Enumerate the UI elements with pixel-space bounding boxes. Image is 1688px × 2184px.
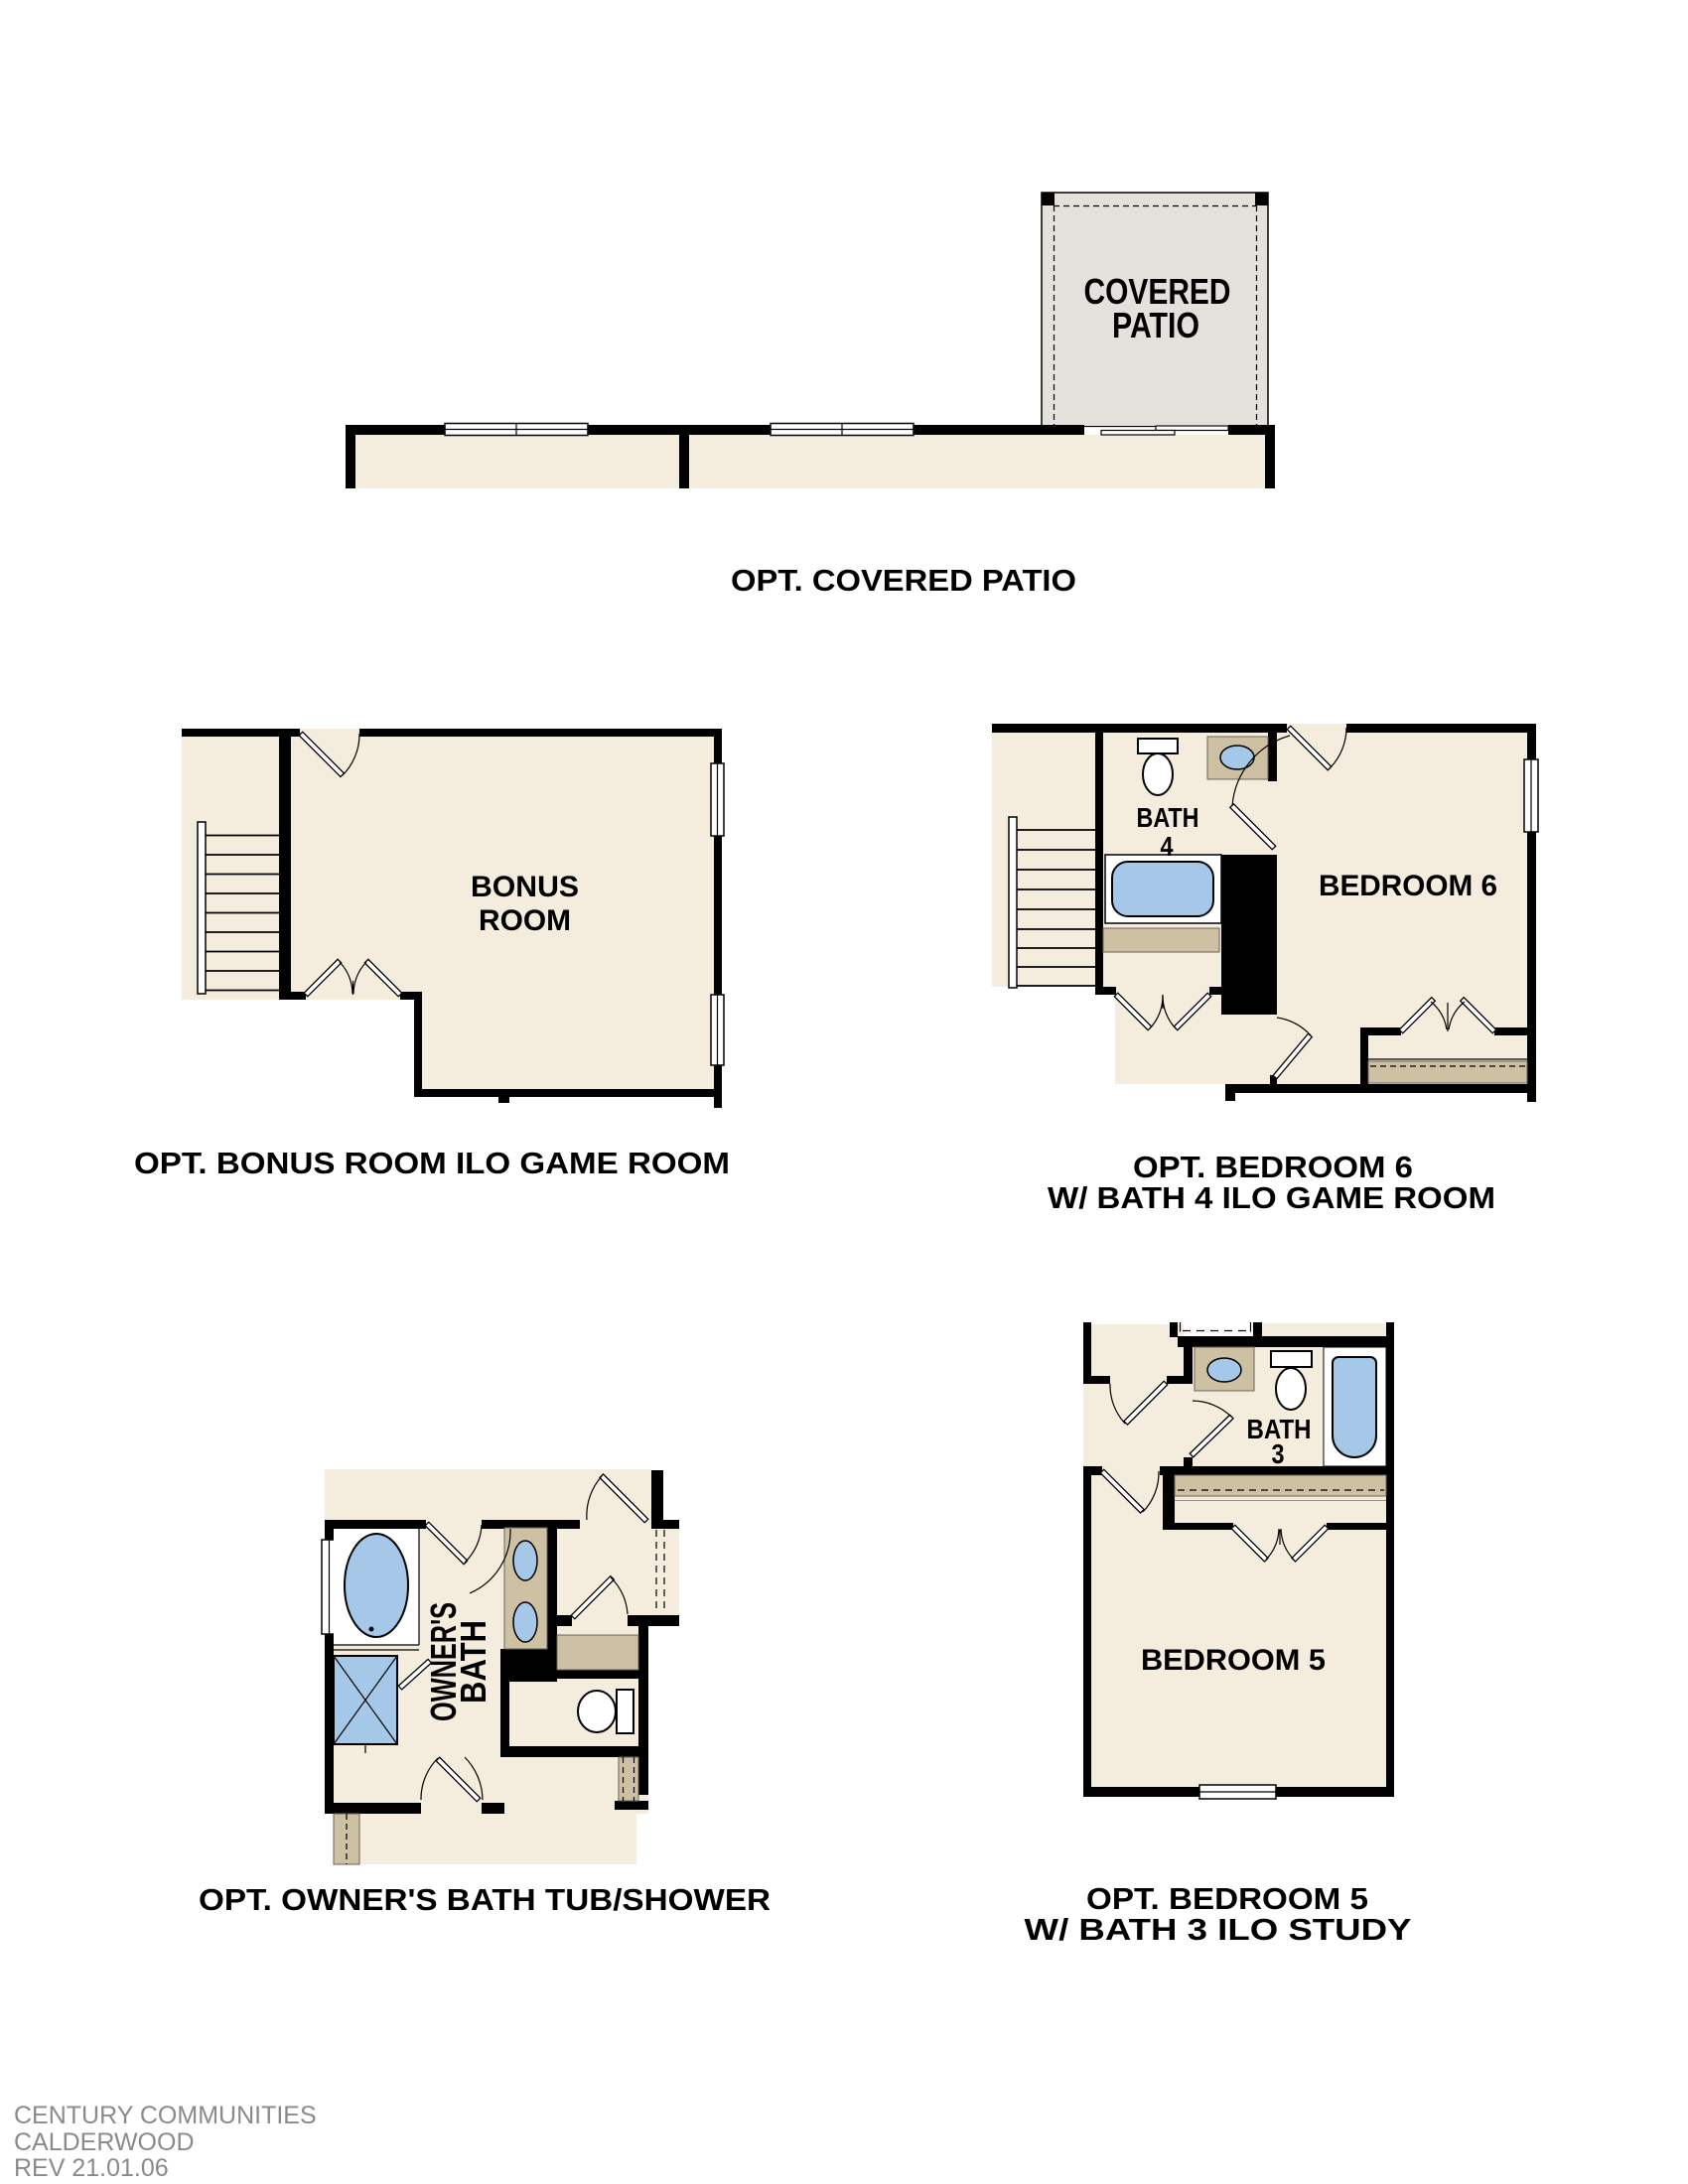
svg-text:CENTURY COMMUNITIES: CENTURY COMMUNITIES <box>14 2102 317 2129</box>
svg-text:BEDROOM 6: BEDROOM 6 <box>1319 870 1497 902</box>
svg-text:OPT. BEDROOM 6: OPT. BEDROOM 6 <box>1133 1150 1413 1184</box>
svg-text:W/ BATH 3 ILO STUDY: W/ BATH 3 ILO STUDY <box>1025 1912 1412 1947</box>
svg-text:BEDROOM 5: BEDROOM 5 <box>1141 1644 1326 1677</box>
svg-text:BATH: BATH <box>453 1620 493 1704</box>
svg-text:CALDERWOOD: CALDERWOOD <box>14 2128 195 2156</box>
svg-text:OPT. BONUS ROOM ILO GAME ROOM: OPT. BONUS ROOM ILO GAME ROOM <box>134 1146 730 1180</box>
svg-text:W/ BATH 4 ILO GAME ROOM: W/ BATH 4 ILO GAME ROOM <box>1048 1180 1495 1215</box>
svg-text:3: 3 <box>1272 1438 1285 1469</box>
svg-text:OPT. OWNER'S BATH TUB/SHOWER: OPT. OWNER'S BATH TUB/SHOWER <box>199 1882 771 1917</box>
svg-text:ROOM: ROOM <box>479 904 571 937</box>
svg-text:OPT. BEDROOM 5: OPT. BEDROOM 5 <box>1086 1881 1368 1916</box>
svg-text:BATH: BATH <box>1137 802 1199 833</box>
svg-text:OPT. COVERED PATIO: OPT. COVERED PATIO <box>731 563 1076 598</box>
svg-text:PATIO: PATIO <box>1112 305 1199 345</box>
svg-text:4: 4 <box>1161 831 1175 862</box>
svg-text:BONUS: BONUS <box>471 871 579 903</box>
svg-text:REV 21.01.06: REV 21.01.06 <box>14 2154 169 2182</box>
